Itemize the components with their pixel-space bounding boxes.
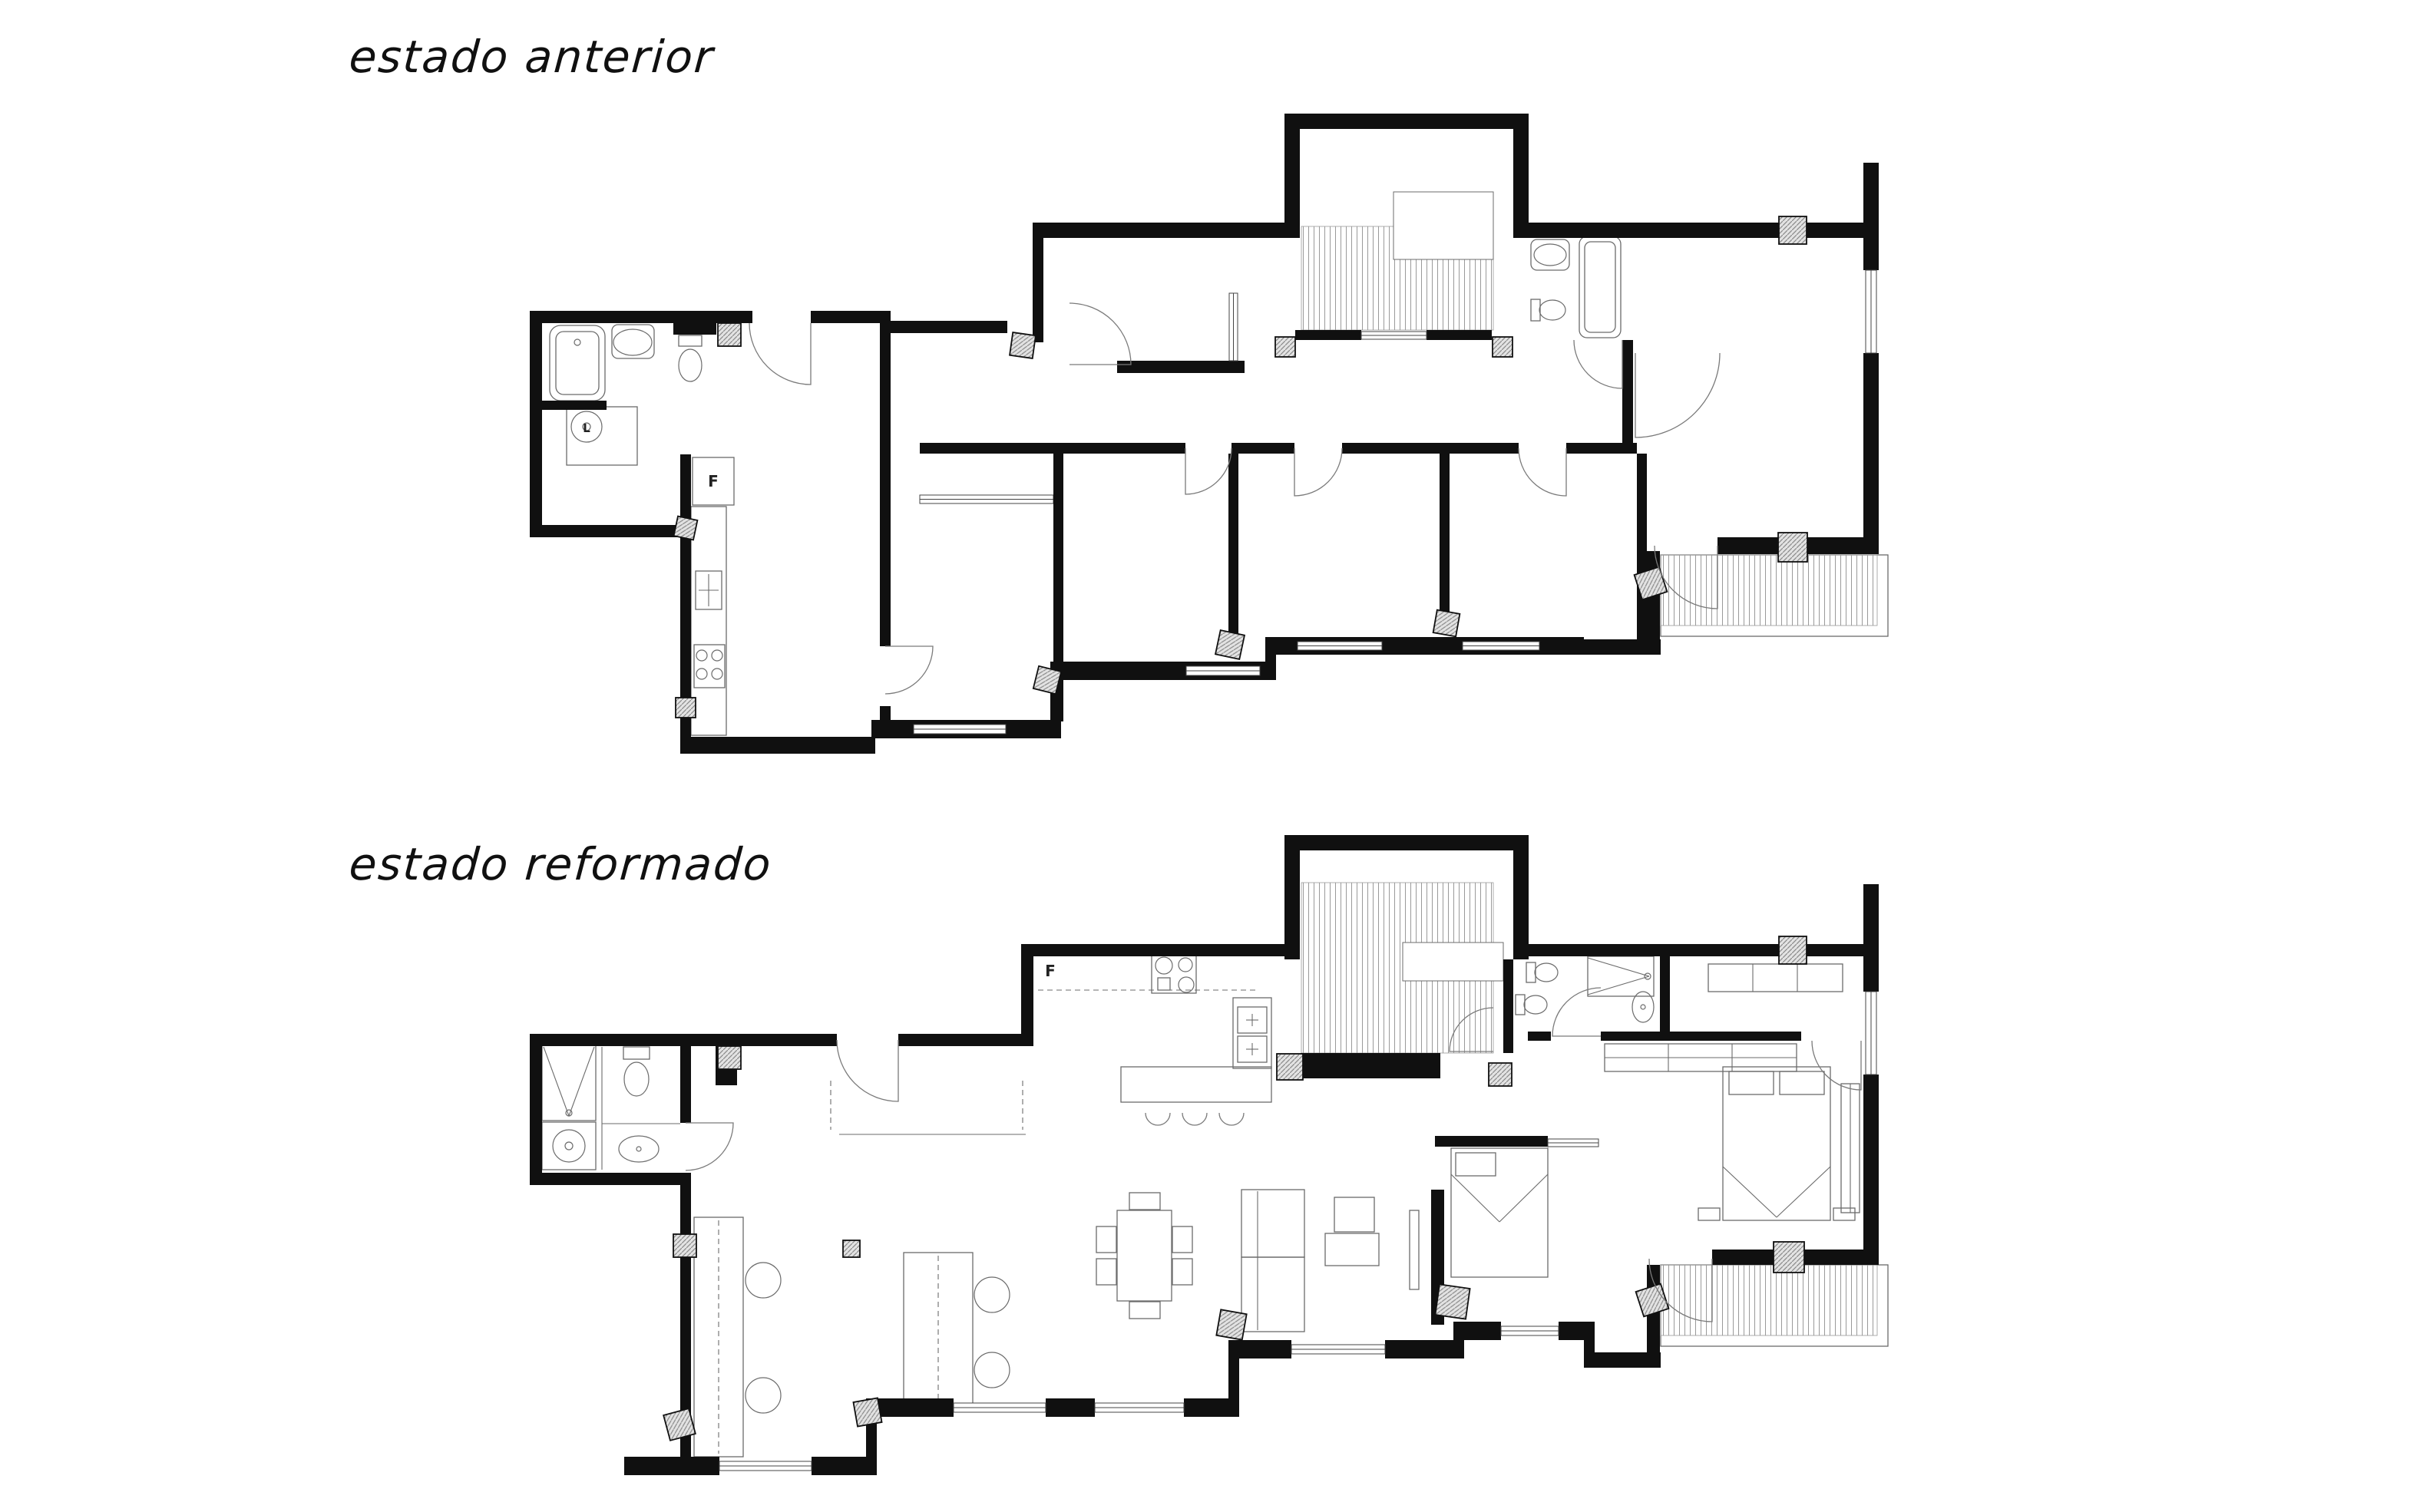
window (1361, 332, 1427, 339)
window (1866, 270, 1876, 353)
title-estado-anterior: estado anterior (348, 31, 716, 83)
column-pillar (1778, 533, 1807, 562)
column-pillar (1489, 1063, 1512, 1086)
wall (1435, 1136, 1548, 1147)
column-pillar (674, 517, 698, 540)
wall (530, 311, 542, 537)
wall (1529, 223, 1779, 238)
column-pillar (1215, 630, 1245, 659)
toilet-tank (623, 1047, 650, 1059)
shower-line (544, 1047, 569, 1116)
window (719, 1461, 812, 1471)
stair-landing (1403, 943, 1503, 981)
burner (1179, 958, 1192, 972)
toilet-tank (679, 335, 702, 346)
sink-drain (636, 1147, 641, 1151)
door-arc (1185, 448, 1231, 494)
wall (1863, 1075, 1879, 1265)
shower-line (569, 1047, 594, 1116)
burner (712, 669, 722, 679)
stool (1219, 1113, 1244, 1125)
stool (1182, 1113, 1207, 1125)
wall (1025, 944, 1298, 956)
stair-landing (1393, 192, 1493, 259)
title-estado-reformado: estado reformado (348, 838, 774, 890)
window (1463, 642, 1539, 650)
bed-fold (1723, 1167, 1777, 1217)
wall (1301, 1053, 1440, 1078)
bed-fold (1499, 1174, 1548, 1222)
toilet-tank (1531, 299, 1540, 321)
wall (1284, 835, 1529, 850)
wall (1513, 835, 1529, 959)
plan-estado-reformado: F (530, 835, 1888, 1475)
pillow (1456, 1153, 1496, 1176)
burner (696, 650, 707, 661)
floor-plans-drawing: FLF (0, 0, 2420, 1512)
bathtub-inner (1585, 242, 1615, 332)
bathtub (1579, 236, 1621, 338)
wall (530, 1173, 691, 1185)
chair (1129, 1302, 1160, 1319)
wall (1284, 114, 1529, 129)
wall (1503, 959, 1513, 1053)
wall (1863, 163, 1879, 270)
wall (624, 1457, 719, 1475)
column-pillar (1779, 936, 1807, 964)
column-pillar (1493, 337, 1512, 357)
wall (898, 1034, 1026, 1046)
shower-line (1588, 958, 1649, 976)
chair (746, 1378, 781, 1413)
window (1501, 1326, 1559, 1335)
wall (1660, 955, 1670, 1035)
fridge-label: F (708, 472, 719, 490)
toilet-bowl (624, 1062, 649, 1096)
armchair (1325, 1233, 1379, 1266)
wall (1342, 443, 1519, 454)
terrace-hatch (1661, 555, 1877, 626)
washer-door (565, 1142, 573, 1150)
wall (811, 311, 891, 323)
wall (1453, 1322, 1464, 1358)
wall (1033, 223, 1043, 342)
wall (1601, 1032, 1801, 1041)
chair (746, 1263, 781, 1298)
island-bar (1121, 1067, 1271, 1102)
wall (1584, 639, 1661, 655)
wall (1637, 454, 1647, 639)
stove (1152, 955, 1196, 993)
wall (1863, 884, 1879, 992)
plan-estado-anterior: FL (530, 114, 1888, 754)
wall (1231, 443, 1294, 454)
column-pillar (663, 1408, 696, 1441)
chair (974, 1277, 1010, 1312)
chair (1129, 1193, 1160, 1210)
toilet-bowl (1539, 300, 1565, 320)
door-arc (1635, 353, 1720, 437)
wall (891, 321, 1007, 333)
wall (1513, 114, 1529, 238)
nightstand (1833, 1208, 1855, 1220)
door-arc (837, 1040, 898, 1101)
door-arc (1574, 340, 1622, 388)
wall (1427, 330, 1492, 340)
toilet-tank (1526, 962, 1536, 982)
pillow (1729, 1071, 1774, 1094)
wall (530, 311, 752, 323)
column-pillar (1275, 337, 1295, 357)
door-arc (1069, 303, 1131, 365)
wall (1440, 454, 1450, 626)
column-pillar (718, 323, 741, 346)
chair (974, 1352, 1010, 1388)
chair (1096, 1226, 1116, 1253)
bidet-bowl (1524, 995, 1547, 1014)
column-pillar (1277, 1054, 1303, 1080)
bed (1451, 1148, 1548, 1277)
column-pillar (1435, 1284, 1470, 1319)
kitchen-counter (691, 507, 726, 735)
wall (1284, 114, 1300, 238)
sink-basin (613, 329, 652, 355)
column-pillar (1774, 1242, 1804, 1273)
bidet-tank (1516, 995, 1525, 1015)
terrace-hatch (1661, 1265, 1877, 1335)
sofa (1241, 1190, 1304, 1257)
wall (1284, 835, 1300, 959)
wall (530, 1034, 542, 1185)
wall (680, 737, 875, 754)
sink-drain (1641, 1005, 1645, 1009)
wall (1863, 353, 1879, 537)
pillow (1780, 1071, 1824, 1094)
window (1548, 1139, 1598, 1147)
sofa (1241, 1257, 1304, 1332)
shower (1588, 956, 1654, 996)
wall (880, 311, 891, 646)
wall (1021, 944, 1033, 1046)
shower-drain (1645, 973, 1651, 979)
wall (680, 1046, 691, 1123)
column-pillar (843, 1240, 860, 1257)
door-arc (1294, 448, 1342, 496)
burner-square (1158, 978, 1170, 990)
window (1866, 992, 1876, 1075)
bathtub (550, 325, 605, 401)
toilet-bowl (679, 349, 702, 381)
chair (1172, 1226, 1192, 1253)
tub-drain (574, 339, 580, 345)
burner (696, 669, 707, 679)
sink-basin (619, 1136, 659, 1162)
door-arc (885, 646, 933, 694)
sink-basin (1534, 244, 1566, 266)
wall (1239, 1340, 1291, 1358)
wall (530, 401, 607, 410)
wall (1622, 340, 1633, 454)
wall (1228, 1340, 1239, 1417)
column-pillar (1033, 666, 1061, 694)
column-pillar (1779, 216, 1807, 244)
column-pillar (853, 1398, 881, 1426)
column-pillar (1433, 610, 1460, 637)
door-arc (1552, 988, 1601, 1036)
column-pillar (718, 1046, 741, 1069)
washer-label: L (583, 421, 590, 435)
stool (1146, 1113, 1170, 1125)
column-pillar (673, 1234, 696, 1257)
window (1229, 293, 1238, 361)
bed-fold (1451, 1174, 1499, 1222)
wall (530, 525, 680, 537)
wall (1464, 1322, 1501, 1340)
wall (1528, 1032, 1551, 1041)
wall (1529, 944, 1779, 956)
wall (877, 1398, 954, 1417)
burner (712, 650, 722, 661)
bed-fold (1777, 1167, 1830, 1217)
sideboard (1410, 1210, 1419, 1289)
door-arc (686, 1123, 733, 1170)
transom-window (920, 495, 1053, 503)
column-pillar (1010, 332, 1036, 358)
wall (1117, 361, 1245, 373)
window (1095, 1403, 1184, 1412)
column-pillar (1216, 1309, 1246, 1339)
wall (1265, 637, 1276, 680)
dining-table (1117, 1210, 1172, 1301)
column-pillar (676, 698, 696, 718)
nightstand (1698, 1208, 1720, 1220)
washer-box (542, 1122, 596, 1170)
washer-box (567, 407, 637, 465)
burner (1155, 957, 1172, 974)
wall (812, 1457, 875, 1475)
wall (1385, 1340, 1464, 1358)
floor-plan-sheet: FLF estado anterior estado reformado (0, 0, 2420, 1512)
chair (1096, 1259, 1116, 1285)
armchair (1334, 1197, 1374, 1232)
wall (530, 1034, 837, 1046)
wall (1559, 1322, 1584, 1340)
window (1298, 642, 1382, 650)
window (1291, 1345, 1385, 1354)
shower (542, 1045, 596, 1121)
door-arc (1519, 448, 1566, 496)
door-arc (749, 323, 811, 385)
wall (1228, 454, 1238, 649)
wall (1038, 223, 1284, 238)
wall (673, 321, 716, 335)
bed (1723, 1067, 1830, 1220)
fridge-label: F (1045, 962, 1056, 980)
window (1186, 666, 1260, 675)
door-arc (1812, 1041, 1861, 1090)
wall (920, 443, 1185, 454)
washer-drum (553, 1130, 585, 1162)
wall (1046, 1398, 1095, 1417)
window (954, 1403, 1046, 1412)
window (914, 725, 1006, 734)
bathtub-inner (556, 332, 599, 395)
wall (1295, 330, 1361, 340)
chair (1172, 1259, 1192, 1285)
toilet-bowl (1535, 963, 1558, 982)
wardrobe (1708, 964, 1843, 992)
